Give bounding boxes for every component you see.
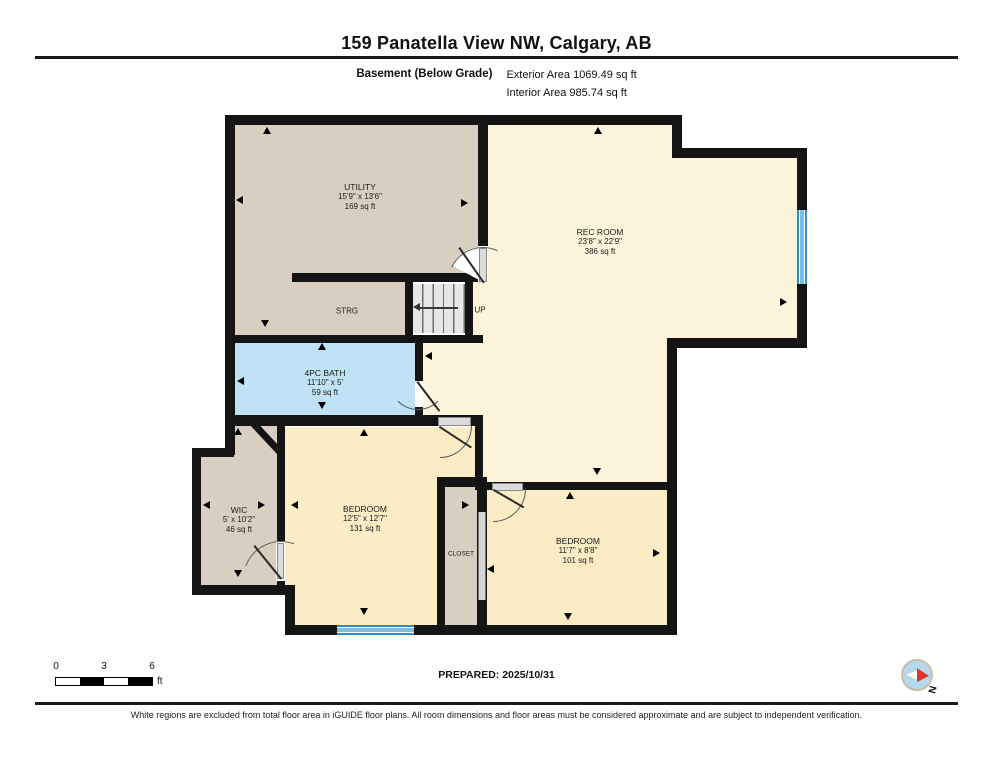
wall <box>437 485 445 635</box>
dimension-arrow <box>594 127 602 134</box>
bedroom2-label: BEDROOM 11'7" x 8'8" 101 sq ft <box>556 536 600 566</box>
room-area: 169 sq ft <box>338 202 382 212</box>
room-area: 101 sq ft <box>556 556 600 566</box>
bedroom1-label: BEDROOM 12'5" x 12'7" 131 sq ft <box>343 504 387 534</box>
rec-room-area <box>483 125 672 482</box>
wall <box>478 115 488 246</box>
dimension-arrow <box>487 565 494 573</box>
door-leaf <box>438 417 471 426</box>
closet-label: CLOSET <box>448 551 474 558</box>
dimension-arrow <box>318 402 326 409</box>
room-name: REC ROOM <box>577 227 624 237</box>
wall <box>405 275 413 342</box>
floor-plan <box>0 0 993 768</box>
wall <box>225 115 682 125</box>
dimension-arrow <box>462 501 469 509</box>
disclaimer-text: White regions are excluded from total fl… <box>0 710 993 720</box>
storage-label: STRG <box>336 307 358 316</box>
room-dims: 11'10" x 5' <box>305 378 346 388</box>
wic-label: WIC 5' x 10'2" 46 sq ft <box>223 505 255 535</box>
room-name: UTILITY <box>338 182 382 192</box>
stairs-up-label: UP <box>474 306 485 315</box>
dimension-arrow <box>234 428 242 435</box>
closet-sliding-door <box>478 512 486 600</box>
dimension-arrow <box>291 501 298 509</box>
room-name: WIC <box>223 505 255 515</box>
dimension-arrow <box>461 199 468 207</box>
wall <box>667 338 807 348</box>
utility-room-label: UTILITY 15'9" x 13'6" 169 sq ft <box>338 182 382 212</box>
dimension-arrow <box>261 320 269 327</box>
room-dims: 15'9" x 13'6" <box>338 192 382 202</box>
room-name: BEDROOM <box>556 536 600 546</box>
dimension-arrow <box>653 549 660 557</box>
room-dims: 11'7" x 8'8" <box>556 546 600 556</box>
dimension-arrow <box>203 501 210 509</box>
room-area: 131 sq ft <box>343 524 387 534</box>
dimension-arrow <box>564 613 572 620</box>
compass-icon: N <box>896 655 942 704</box>
wall <box>672 115 682 158</box>
room-dims: 12'5" x 12'7" <box>343 514 387 524</box>
wall <box>225 115 235 455</box>
dimension-arrow <box>318 343 326 350</box>
room-dims: 23'8" x 22'9" <box>577 237 624 247</box>
dimension-arrow <box>360 608 368 615</box>
dimension-arrow <box>566 492 574 499</box>
rec-room-area <box>672 148 797 338</box>
room-area: 46 sq ft <box>223 525 255 535</box>
wall <box>672 148 807 158</box>
wall <box>667 338 677 635</box>
room-name: BEDROOM <box>343 504 387 514</box>
room-dims: 5' x 10'2" <box>223 515 255 525</box>
wall <box>225 335 483 343</box>
rec-room-label: REC ROOM 23'8" x 22'9" 386 sq ft <box>577 227 624 257</box>
floorplan-page: { "header": { "title": "159 Panatella Vi… <box>0 0 993 768</box>
bath-label: 4PC BATH 11'10" x 5' 59 sq ft <box>305 368 346 398</box>
dimension-arrow <box>360 429 368 436</box>
dimension-arrow <box>236 196 243 204</box>
dimension-arrow <box>780 298 787 306</box>
dimension-arrow <box>258 501 265 509</box>
footer-divider <box>35 702 958 705</box>
wall <box>192 448 201 595</box>
compass-n: N <box>925 684 937 694</box>
window <box>797 210 807 284</box>
dimension-arrow <box>234 570 242 577</box>
stairs-arrow-head <box>413 303 420 311</box>
dimension-arrow <box>237 377 244 385</box>
stairs-arrow <box>420 307 458 309</box>
prepared-date: PREPARED: 2025/10/31 <box>0 669 993 681</box>
storage-area <box>235 282 405 343</box>
dimension-arrow <box>425 352 432 360</box>
room-name: 4PC BATH <box>305 368 346 378</box>
room-area: 59 sq ft <box>305 388 346 398</box>
dimension-arrow <box>263 127 271 134</box>
dimension-arrow <box>593 468 601 475</box>
window <box>337 625 414 635</box>
room-area: 386 sq ft <box>577 247 624 257</box>
